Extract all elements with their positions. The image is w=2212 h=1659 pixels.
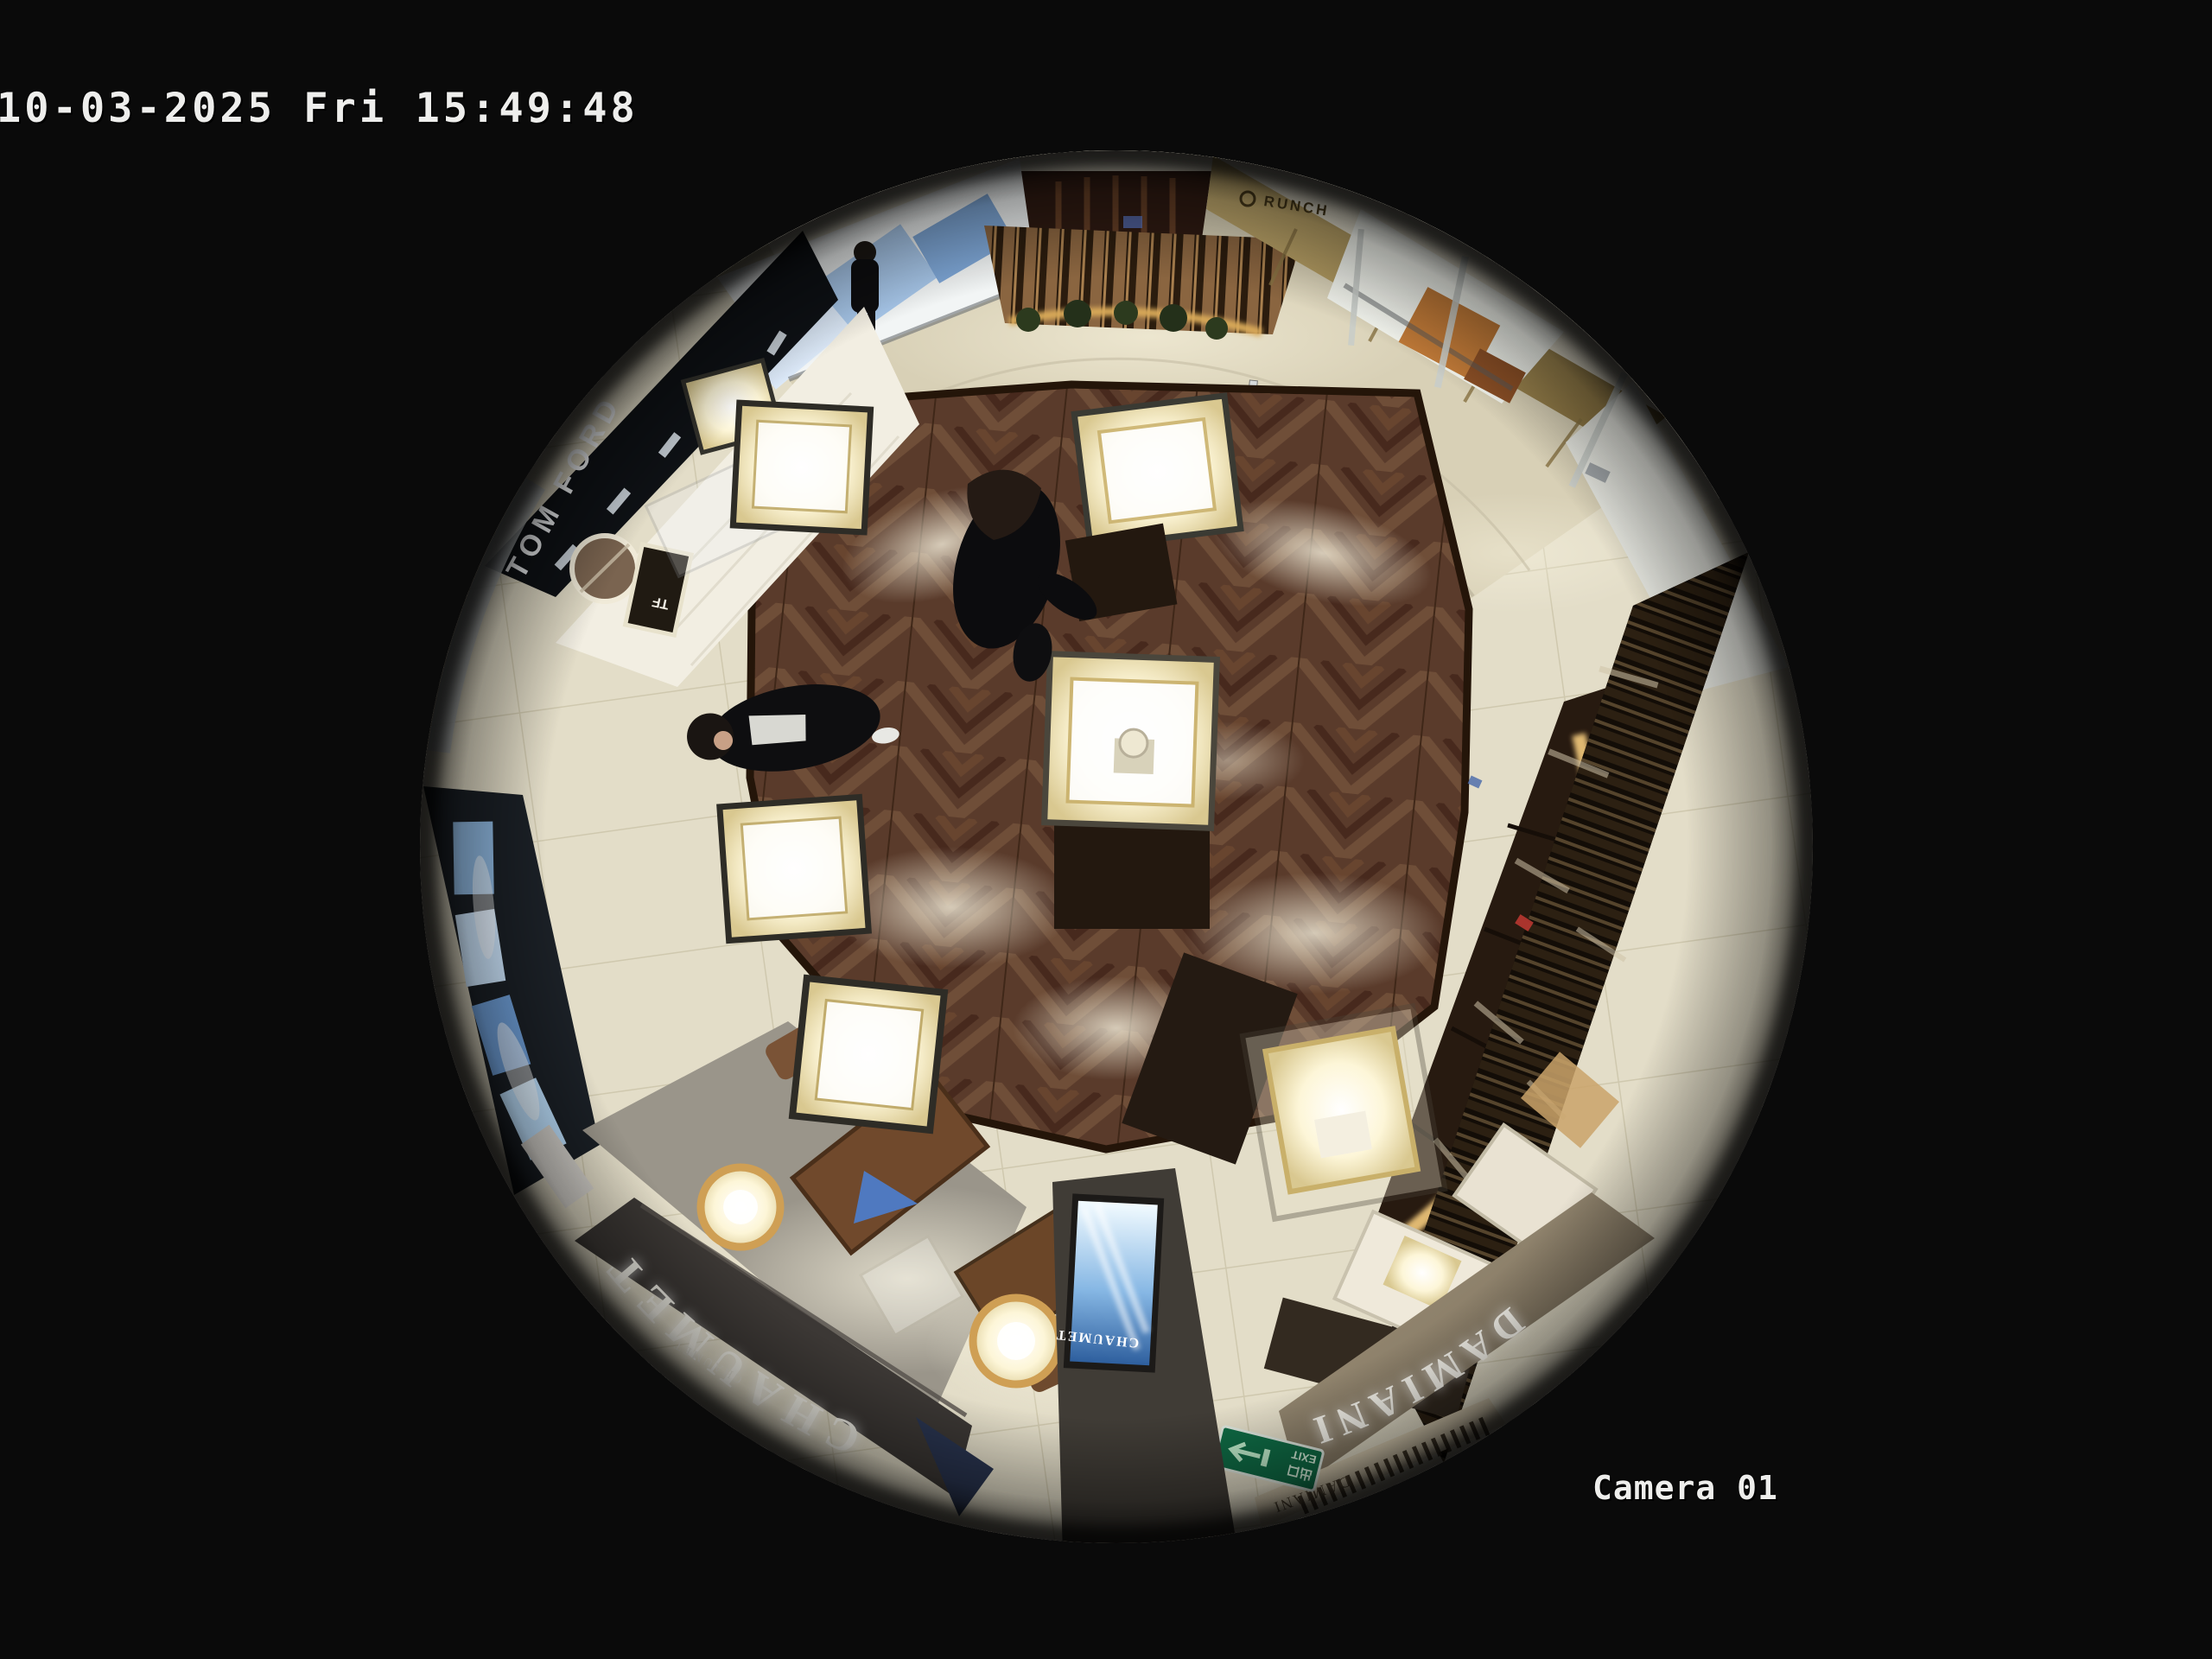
cctv-monitor-screen: RUNCH bbox=[0, 0, 2212, 1659]
timestamp-overlay: 10-03-2025 Fri 15:49:48 bbox=[0, 85, 639, 132]
fisheye-camera-view: RUNCH bbox=[0, 0, 2212, 1659]
lens-scene: RUNCH bbox=[420, 147, 1813, 1555]
camera-label-overlay: Camera 01 bbox=[1592, 1469, 1778, 1507]
